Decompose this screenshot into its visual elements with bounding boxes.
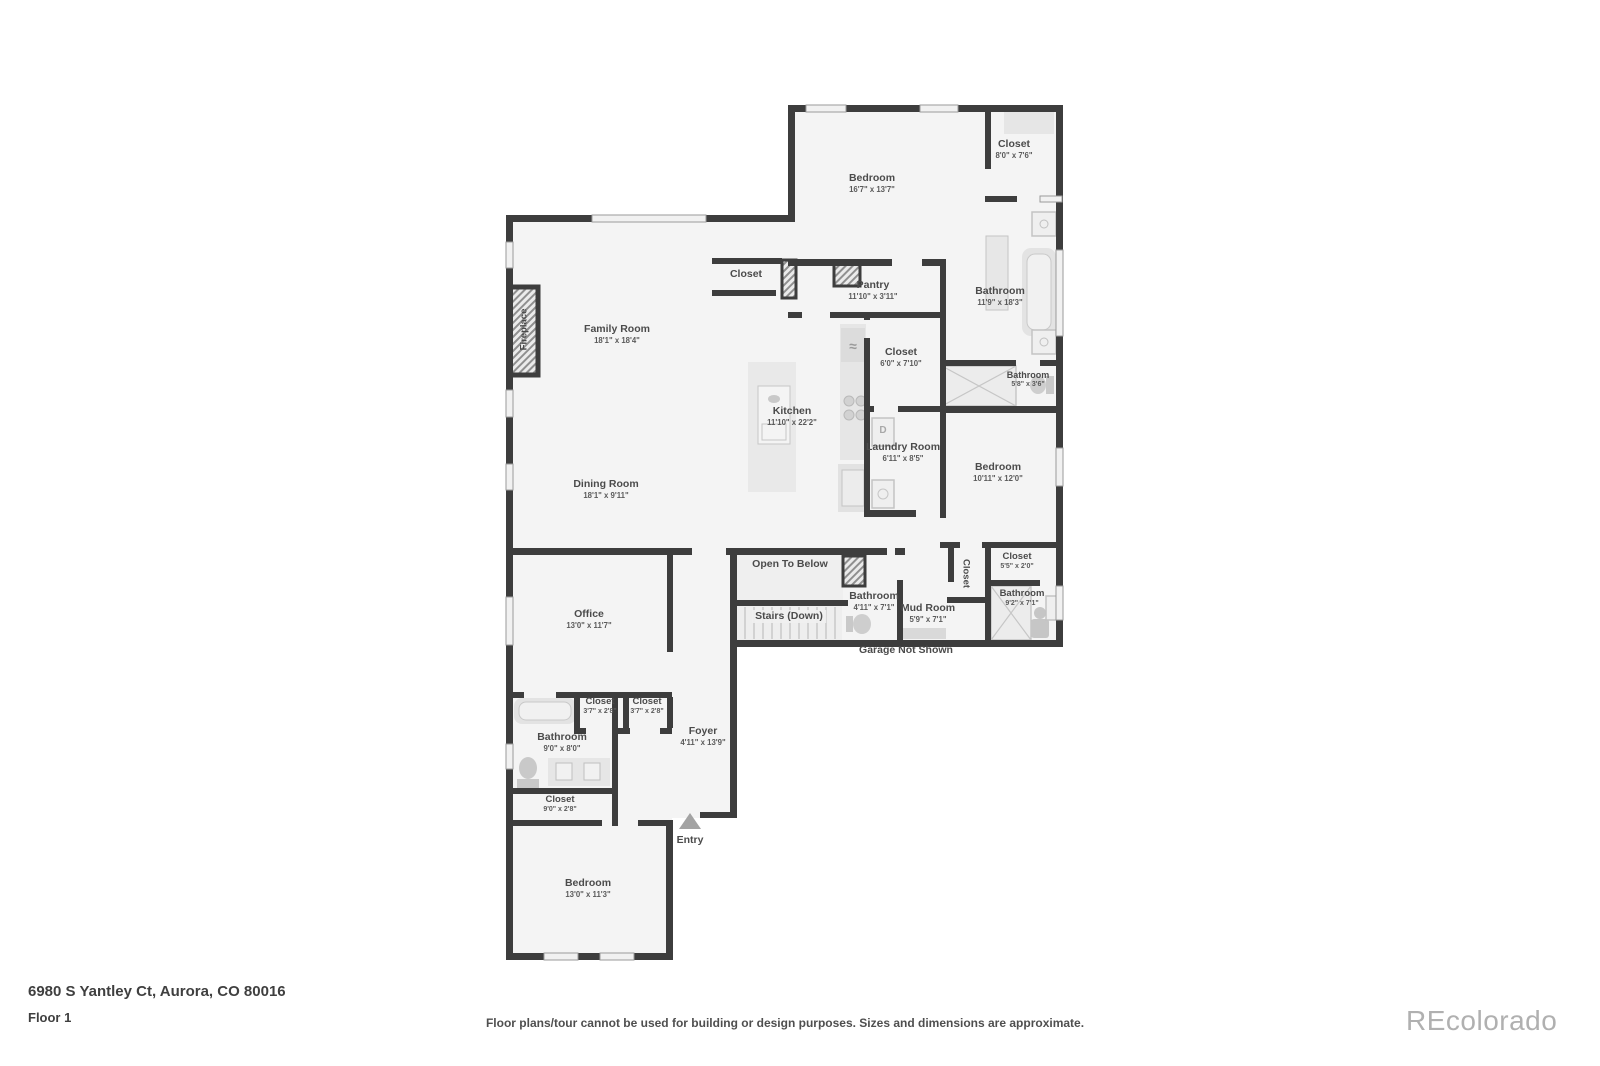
room-label-family-room: Family Room 18'1" x 18'4" xyxy=(584,323,650,346)
room-label-bathroom-lower: Bathroom 9'0" x 8'0" xyxy=(537,731,587,754)
room-label-bathroom-primary: Bathroom 11'9" x 18'3" xyxy=(975,285,1025,308)
room-label-office: Office 13'0" x 11'7" xyxy=(566,608,611,631)
kitchen-counter: ≈ xyxy=(838,324,868,512)
room-label-closet-lower: Closet 9'0" x 2'8" xyxy=(543,794,576,815)
svg-text:≈: ≈ xyxy=(849,338,857,354)
toilet-stairs-bath xyxy=(846,614,871,634)
room-label-bedroom-upper: Bedroom 16'7" x 13'7" xyxy=(849,172,895,195)
sink-hall-bath xyxy=(1046,596,1057,620)
entry-label: Entry xyxy=(677,834,704,847)
room-label-mud-room: Mud Room 5'9" x 7'1" xyxy=(901,602,955,625)
room-label-stairs: Stairs (Down) xyxy=(752,610,826,623)
address-text: 6980 S Yantley Ct, Aurora, CO 80016 xyxy=(28,983,286,1000)
room-label-bathroom-hall: Bathroom 9'2" x 7'1" xyxy=(1000,588,1045,609)
sink-primary-bottom xyxy=(1032,330,1056,354)
floor-plan-page: ≈ xyxy=(0,0,1600,1066)
room-label-closet-office-1: Closet 3'7" x 2'8" xyxy=(583,696,616,717)
sink-primary-top xyxy=(1032,212,1056,236)
room-label-bedroom-lower: Bedroom 13'0" x 11'3" xyxy=(565,877,611,900)
bathtub-lower xyxy=(514,698,576,724)
washer xyxy=(872,480,894,508)
room-label-closet-mid: Closet 6'0" x 7'10" xyxy=(880,346,921,369)
vanity-lower xyxy=(548,758,610,786)
room-label-foyer: Foyer 4'11" x 13'9" xyxy=(680,725,725,748)
room-label-closet-family: Closet xyxy=(730,268,762,281)
room-label-laundry: Laundry Room 6'11" x 8'5" xyxy=(866,441,940,464)
disclaimer-text: Floor plans/tour cannot be used for buil… xyxy=(0,1016,1570,1030)
room-label-kitchen: Kitchen 11'10" x 22'2" xyxy=(767,405,817,428)
room-label-pantry: Pantry 11'10" x 3'11" xyxy=(848,279,897,302)
room-label-fireplace: Fireplace xyxy=(519,309,530,354)
room-label-bathroom-small: Bathroom 5'8" x 3'6" xyxy=(1007,370,1050,390)
garage-note: Garage Not Shown xyxy=(859,644,953,657)
room-label-closet-hall: Closet 5'5" x 2'0" xyxy=(1000,551,1033,572)
room-label-closet-office-2: Closet 3'7" x 2'8" xyxy=(630,696,663,717)
mudroom-bench xyxy=(902,628,946,639)
room-floors xyxy=(506,105,1062,960)
room-label-bathroom-stairs: Bathroom 4'11" x 7'1" xyxy=(849,590,899,613)
room-label-closet-mud: Closet xyxy=(961,559,972,591)
room-label-open-to-below: Open To Below xyxy=(752,558,828,571)
room-label-closet-upper: Closet 8'0" x 7'6" xyxy=(995,138,1032,161)
room-label-dining-room: Dining Room 18'1" x 9'11" xyxy=(573,478,638,501)
watermark-logo: REcolorado xyxy=(1406,1005,1557,1037)
dryer-letter: D xyxy=(879,425,886,438)
floor-plan-drawing: ≈ xyxy=(0,0,1600,1066)
room-label-bedroom-right: Bedroom 10'11" x 12'0" xyxy=(973,461,1023,484)
closet-shelf xyxy=(1004,112,1054,134)
bathtub-primary xyxy=(1022,248,1056,336)
